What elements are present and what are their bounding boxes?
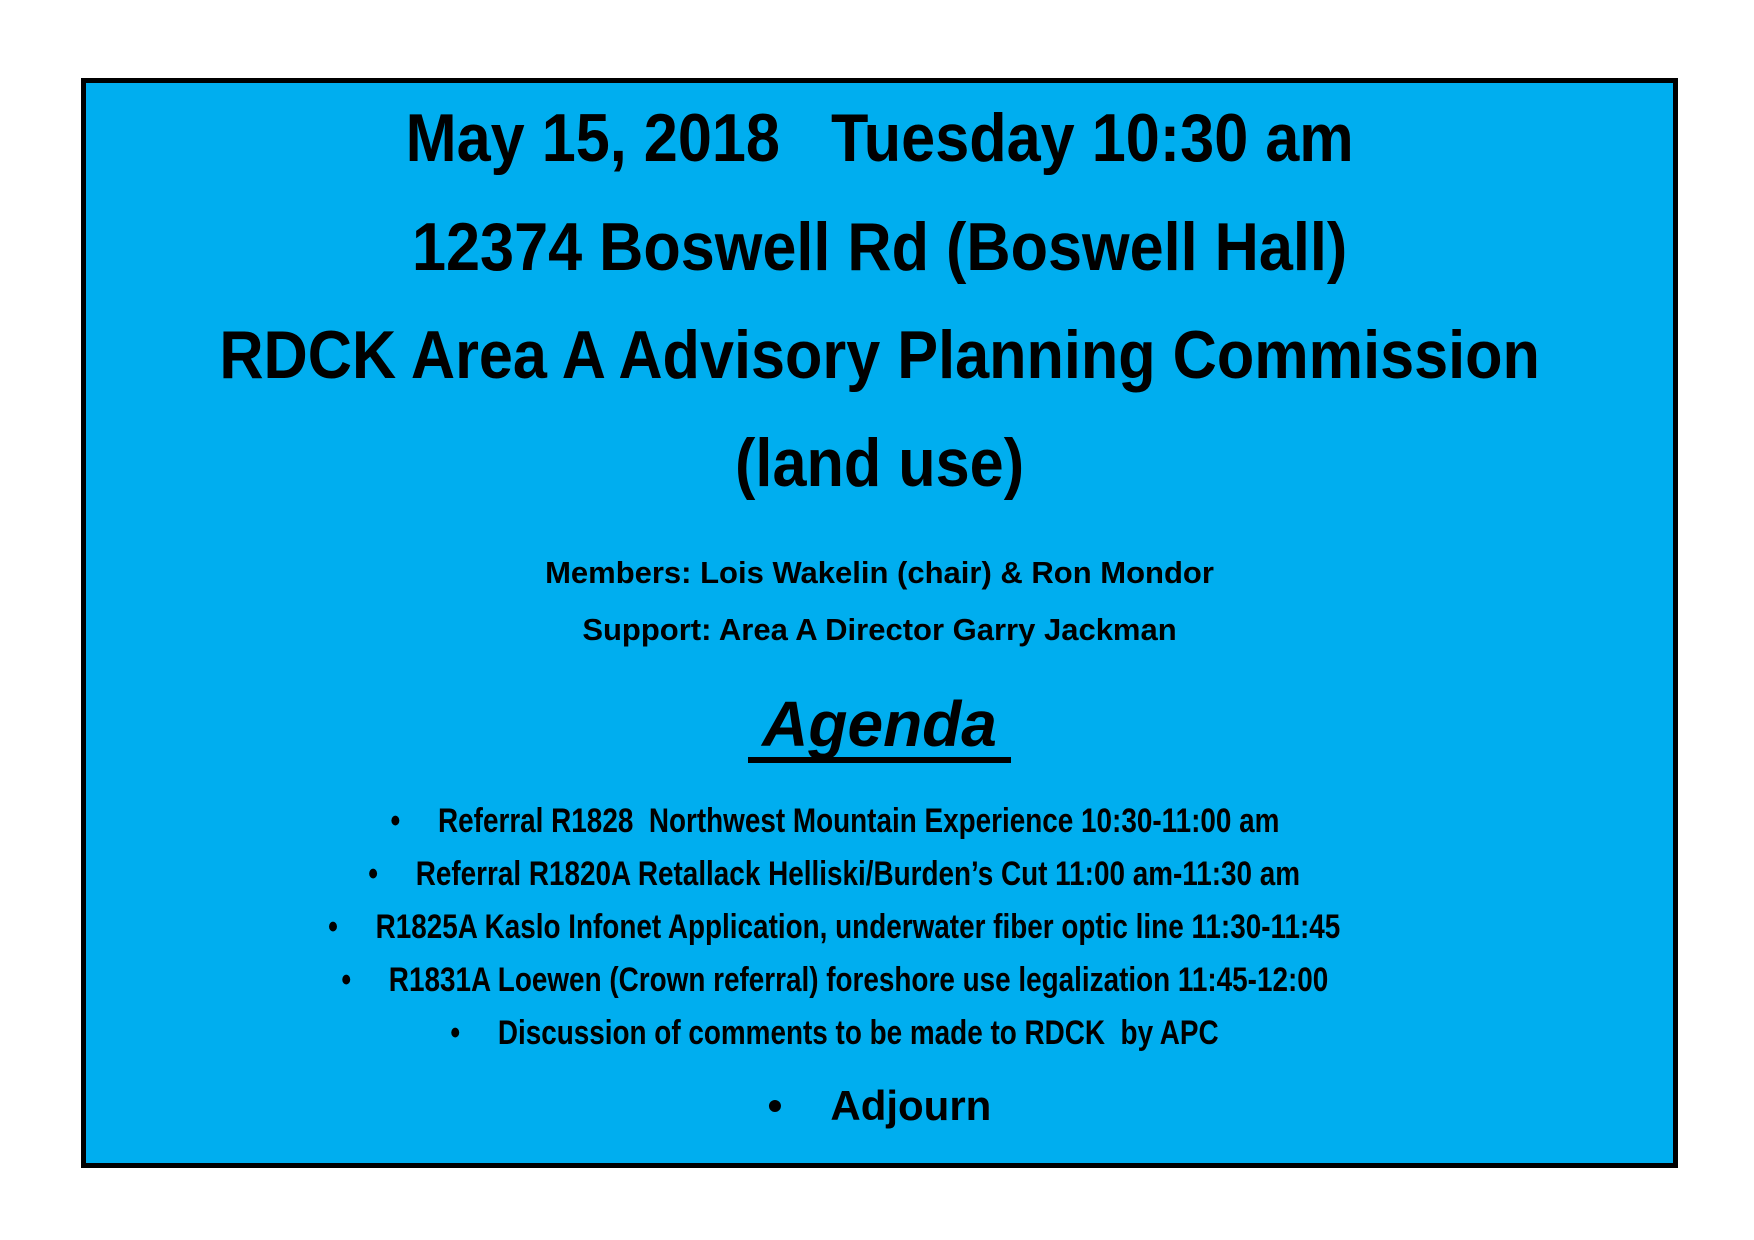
agenda-item: •R1825A Kaslo Infonet Application, under… — [86, 901, 1673, 954]
page-background: May 15, 2018 Tuesday 10:30 am 12374 Bosw… — [0, 0, 1754, 1240]
meeting-subject: (land use) — [86, 429, 1673, 497]
agenda-item: •Referral R1828 Northwest Mountain Exper… — [86, 795, 1673, 848]
bullet-icon: • — [390, 795, 400, 848]
bullet-icon: • — [450, 1007, 460, 1060]
meeting-datetime: May 15, 2018 Tuesday 10:30 am — [86, 104, 1673, 172]
agenda-title: Agenda — [86, 692, 1673, 763]
agenda-item: •Discussion of comments to be made to RD… — [86, 1007, 1673, 1060]
agenda-item-list: •Referral R1828 Northwest Mountain Exper… — [86, 795, 1673, 1060]
agenda-item-text: R1825A Kaslo Infonet Application, underw… — [376, 908, 1341, 946]
agenda-item-text: R1831A Loewen (Crown referral) foreshore… — [388, 961, 1327, 999]
meeting-location-text: 12374 Boswell Rd (Boswell Hall) — [412, 213, 1347, 281]
agenda-item-text: Referral R1828 Northwest Mountain Experi… — [438, 802, 1279, 840]
meeting-organization-text: RDCK Area A Advisory Planning Commission — [219, 321, 1540, 389]
agenda-poster-panel: May 15, 2018 Tuesday 10:30 am 12374 Bosw… — [81, 78, 1678, 1168]
meeting-datetime-text: May 15, 2018 Tuesday 10:30 am — [405, 104, 1353, 172]
bullet-icon: • — [341, 954, 351, 1007]
bullet-icon: • — [768, 1085, 783, 1127]
members-line: Members: Lois Wakelin (chair) & Ron Mond… — [86, 557, 1673, 588]
agenda-item: •R1831A Loewen (Crown referral) foreshor… — [86, 954, 1673, 1007]
meeting-location: 12374 Boswell Rd (Boswell Hall) — [86, 213, 1673, 281]
agenda-title-text: Agenda — [748, 692, 1011, 763]
bullet-icon: • — [369, 848, 379, 901]
support-line: Support: Area A Director Garry Jackman — [86, 614, 1673, 645]
meeting-subject-text: (land use) — [735, 429, 1024, 497]
agenda-item-text: Discussion of comments to be made to RDC… — [498, 1014, 1219, 1052]
meeting-organization: RDCK Area A Advisory Planning Commission — [86, 321, 1673, 389]
agenda-item: •Referral R1820A Retallack Helliski/Burd… — [86, 848, 1673, 901]
bullet-icon: • — [328, 901, 338, 954]
agenda-item-text: Referral R1820A Retallack Helliski/Burde… — [416, 855, 1300, 893]
agenda-item-text: Adjourn — [830, 1082, 991, 1129]
agenda-item-adjourn: •Adjourn — [86, 1085, 1673, 1127]
